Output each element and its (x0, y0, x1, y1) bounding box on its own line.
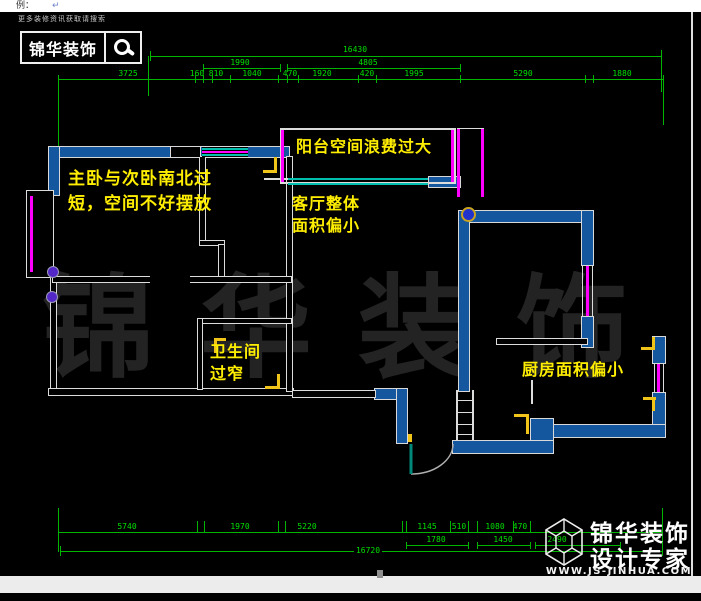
dim-label: 1970 (230, 523, 249, 531)
bedroom-door-frame (263, 170, 276, 173)
window-frame (592, 266, 593, 316)
dim-tick (530, 521, 531, 533)
dim-tick (406, 542, 407, 549)
step-line (456, 412, 474, 413)
door-jamb (170, 147, 171, 157)
footer-brand: 锦华装饰 设计专家 WWW.JS-JINHUA.COM (544, 514, 694, 580)
note-bedroom-line1: 主卧与次卧南北过 (68, 168, 212, 191)
dim-label: 810 (209, 70, 223, 78)
hall-door-frame (526, 414, 529, 434)
dim-tick (535, 542, 536, 549)
dim-label: 1990 (230, 59, 249, 67)
step-line (456, 400, 474, 401)
brand-name: 锦华装饰 (22, 33, 104, 62)
door-jamb (200, 147, 201, 157)
dim-tick (450, 521, 451, 533)
dim-tick (150, 51, 151, 61)
dim-tick (468, 521, 469, 533)
bottom-marker (377, 570, 383, 578)
window-line-cyan (202, 154, 248, 156)
dim-label: 1995 (404, 70, 423, 78)
wall-right-upper (581, 210, 594, 266)
kitchen-counter (531, 380, 533, 404)
dim-label: 1080 (485, 523, 504, 531)
bay-window-glass (30, 196, 33, 272)
note-kitchen: 厨房面积偏小 (522, 359, 624, 380)
dim-tick (230, 75, 231, 83)
wall-step-block (530, 418, 554, 442)
dim-tick (376, 75, 377, 83)
balcony-window-left (281, 130, 284, 182)
dim-tick (298, 75, 299, 83)
wall-bath-top (197, 318, 292, 324)
cube-logo-icon (544, 518, 584, 566)
step-line (456, 424, 474, 425)
dim-tick (585, 75, 586, 83)
dim-tick (530, 542, 531, 549)
dim-label: 1880 (612, 70, 631, 78)
step-line (456, 434, 474, 435)
window-vertical (481, 129, 484, 197)
dim-tick (58, 75, 59, 83)
balcony-slider-glass (288, 178, 428, 180)
magnifier-handle-icon (126, 48, 135, 56)
dim-label: 1920 (312, 70, 331, 78)
note-bath-line2: 过窄 (210, 363, 244, 384)
wall-kitchen-top (496, 338, 588, 345)
dim-tick (287, 64, 288, 72)
window-glass (586, 266, 589, 316)
dim-label: 1450 (493, 536, 512, 544)
dim-tick (358, 75, 359, 83)
window-head (457, 128, 484, 129)
window-glass (657, 364, 660, 392)
dim-label: 1780 (426, 536, 445, 544)
dim-tick (278, 75, 279, 83)
search-icon (104, 33, 140, 62)
dim-label: 1145 (417, 523, 436, 531)
dim-tick (285, 521, 286, 533)
note-bedroom-line2: 短，空间不好摆放 (68, 193, 212, 216)
dim-line (406, 545, 468, 546)
bath-door-frame (265, 386, 280, 389)
wall-bottom-left (48, 388, 294, 396)
dim-tick (212, 75, 213, 83)
entry-door-swing (406, 440, 458, 480)
dim-label: 3725 (118, 70, 137, 78)
wall-rightblock-top (458, 210, 591, 223)
window-line-cyan (202, 148, 248, 150)
door-opening (170, 147, 200, 157)
note-bath-line1: 卫生间 (210, 341, 261, 362)
wall-living-left (286, 156, 293, 392)
door-opening (150, 276, 190, 283)
dim-tick (460, 64, 461, 72)
dim-label: 4805 (358, 59, 377, 67)
kitchen-window-frame (652, 337, 655, 350)
dim-tick (661, 51, 662, 61)
dim-tick (197, 521, 198, 533)
wall-bath-left (197, 318, 203, 390)
kitchen-window-frame (652, 400, 655, 411)
column-highlight (461, 207, 476, 222)
dim-line (477, 545, 530, 546)
return-mark-icon: ↵ (52, 0, 60, 12)
dim-tick (402, 521, 403, 533)
dim-tick (477, 521, 478, 533)
dim-tick (460, 75, 461, 83)
balcony-window-right (451, 130, 454, 182)
wall-kitchen-bottom (552, 424, 666, 438)
balcony-slider-glass (288, 183, 428, 185)
window-frame (582, 266, 583, 316)
window-frame (663, 364, 664, 392)
topbar-text: 例： (16, 0, 34, 12)
dim-tick (60, 546, 61, 556)
dim-tick (58, 521, 59, 533)
note-living-line2: 面积偏小 (292, 215, 360, 236)
dim-tick (593, 75, 594, 83)
note-balcony: 阳台空间浪费过大 (296, 136, 432, 157)
wall-living-bl-v (396, 388, 408, 444)
dim-label: 470 (283, 70, 297, 78)
steps-rail (472, 390, 474, 440)
dim-extension (148, 56, 149, 96)
dim-tick (287, 75, 288, 83)
wall-entry-bottom (452, 440, 554, 454)
dim-tick (203, 64, 204, 72)
steps-rail (456, 390, 458, 440)
wall-living-right (458, 210, 470, 392)
dim-label: 1040 (242, 70, 261, 78)
dim-tick (278, 521, 279, 533)
wall-bottom-living (292, 390, 376, 398)
editor-topbar: 例： ↵ (0, 0, 701, 12)
dim-label: 470 (513, 523, 527, 531)
dim-extension (663, 79, 664, 125)
cad-floorplan-screenshot: 例： ↵ 更多装修资讯获取请搜索 锦华装饰 锦华装饰 16430 1990 48… (0, 0, 701, 601)
search-hint-text: 更多装修资讯获取请搜索 (18, 14, 106, 24)
column (46, 291, 58, 303)
window-line-magenta (202, 151, 248, 153)
dim-label: 5740 (117, 523, 136, 531)
dim-label: 16720 (354, 547, 382, 555)
window-vertical (457, 129, 460, 197)
dim-line-top-total (150, 56, 661, 57)
dim-tick (195, 75, 196, 83)
column (47, 266, 59, 278)
dim-tick (280, 64, 281, 72)
dim-tick (663, 75, 664, 83)
bottom-white-strip (0, 576, 701, 593)
dim-label: 5220 (297, 523, 316, 531)
dim-line (58, 79, 663, 80)
wall-left-upper (48, 146, 60, 196)
dim-label: 5290 (513, 70, 532, 78)
dim-tick (513, 521, 514, 533)
dim-tick (204, 521, 205, 533)
note-living-line1: 客厅整体 (292, 193, 360, 214)
dim-tick (203, 75, 204, 83)
dim-label: 420 (360, 70, 374, 78)
dim-tick (468, 542, 469, 549)
dim-label: 16430 (343, 46, 367, 54)
dim-label: 510 (452, 523, 466, 531)
dim-extension (58, 79, 59, 147)
page-right-edge (691, 12, 693, 576)
window-frame (654, 364, 655, 392)
dim-tick (477, 542, 478, 549)
brand-search-box: 锦华装饰 (20, 31, 142, 64)
dim-tick (406, 521, 407, 533)
